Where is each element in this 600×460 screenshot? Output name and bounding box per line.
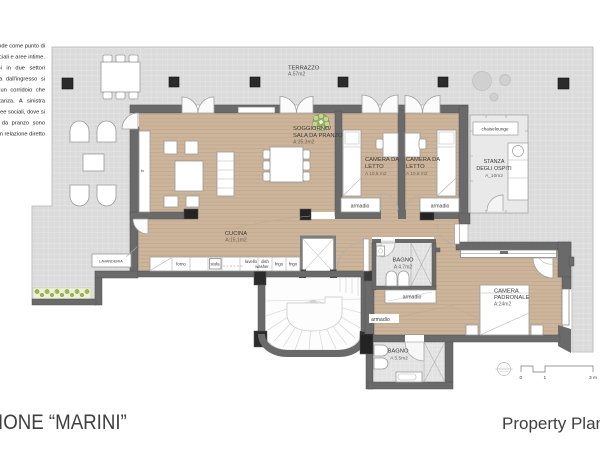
svg-text:LAVANDERIA: LAVANDERIA (99, 260, 123, 264)
svg-text:CAMERA: CAMERA (494, 289, 519, 295)
svg-text:frigo: frigo (275, 262, 284, 267)
svg-text:CUCINA: CUCINA (225, 231, 247, 237)
svg-text:LETTO: LETTO (406, 164, 425, 170)
svg-text:A:35,3m2: A:35,3m2 (293, 140, 315, 146)
svg-text:washer: washer (255, 264, 269, 269)
svg-text:A 4.7m2: A 4.7m2 (394, 265, 413, 271)
svg-text:BAGNO: BAGNO (388, 349, 409, 355)
svg-text:stufa: stufa (210, 262, 220, 267)
svg-text:BAGNO: BAGNO (393, 258, 414, 264)
svg-text:chaiselounge: chaiselounge (481, 127, 509, 132)
svg-text:1: 1 (544, 375, 547, 381)
svg-text:SOGGIORNO/: SOGGIORNO/ (293, 126, 331, 132)
svg-text:stanza. A sinistra: stanza. A sinistra (0, 99, 46, 105)
svg-text:ala da pranzo sono: ala da pranzo sono (0, 121, 45, 127)
svg-text:A_10m2: A_10m2 (485, 173, 503, 179)
svg-text:pi in due settori: pi in due settori (0, 66, 45, 72)
svg-text:frigo: frigo (289, 262, 298, 267)
svg-text:tv: tv (141, 168, 144, 173)
svg-text:sociali e aree intime.: sociali e aree intime. (0, 55, 45, 61)
svg-text:o, in relazione diretto: o, in relazione diretto (0, 132, 45, 138)
svg-text:A 10.8 m2: A 10.8 m2 (406, 171, 428, 177)
svg-text:A:24m2: A:24m2 (494, 302, 511, 308)
svg-text:SALA DA PRANZO: SALA DA PRANZO (293, 133, 343, 139)
svg-text:armadio: armadio (431, 204, 450, 210)
svg-text:e un corridoio che: e un corridoio che (0, 88, 45, 94)
svg-text:A 10.8 m2: A 10.8 m2 (365, 171, 387, 177)
svg-text:IONE “MARINI”: IONE “MARINI” (0, 411, 127, 434)
svg-text:forno: forno (176, 262, 186, 267)
svg-text:Property Plan: Property Plan (502, 414, 600, 433)
svg-text:3 m: 3 m (589, 375, 597, 381)
svg-text:CAMERA DA: CAMERA DA (365, 157, 399, 163)
svg-text:ree sociali, dove si: ree sociali, dove si (0, 110, 45, 116)
svg-text:A 5.5m2: A 5.5m2 (390, 356, 408, 362)
svg-text:ende come punto di: ende come punto di (0, 44, 45, 50)
svg-text:DEGLI OSPITI: DEGLI OSPITI (476, 166, 511, 172)
svg-text:armadio: armadio (371, 317, 390, 323)
svg-text:A.57m2: A.57m2 (288, 72, 305, 78)
svg-text:CAMERA DA: CAMERA DA (406, 157, 440, 163)
svg-text:ntra dall'ingresso si: ntra dall'ingresso si (0, 77, 45, 83)
svg-text:0: 0 (520, 375, 523, 381)
svg-text:A:15,1m2: A:15,1m2 (225, 238, 247, 244)
svg-text:armadio: armadio (403, 295, 422, 301)
svg-text:PADRONALE: PADRONALE (494, 295, 529, 301)
svg-text:STANZA: STANZA (484, 159, 505, 165)
svg-text:armadio: armadio (351, 204, 370, 210)
svg-text:LETTO: LETTO (365, 164, 384, 170)
